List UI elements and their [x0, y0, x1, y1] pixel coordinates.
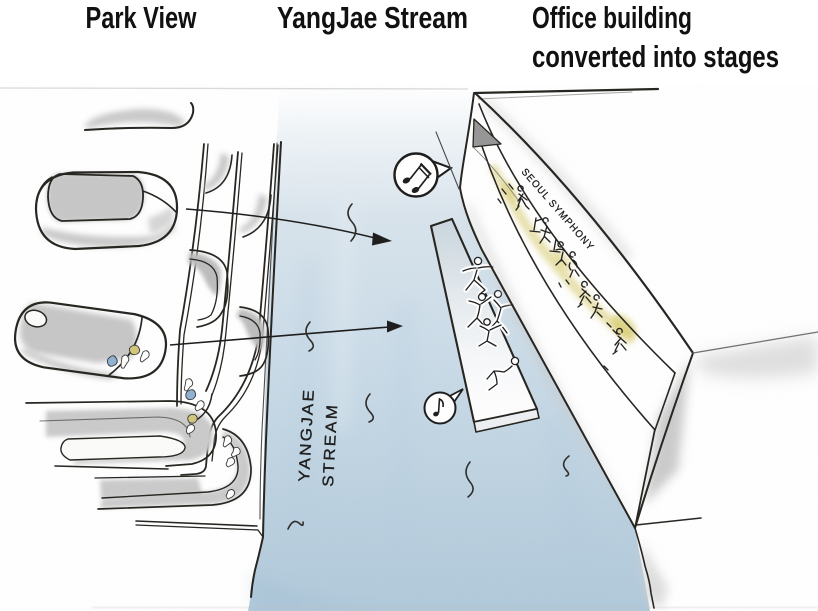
svg-text:YangJae Stream: YangJae Stream	[277, 0, 468, 35]
svg-text:converted into stages: converted into stages	[532, 39, 779, 74]
svg-text:Office building: Office building	[532, 0, 692, 35]
svg-text:Park View: Park View	[86, 0, 198, 35]
